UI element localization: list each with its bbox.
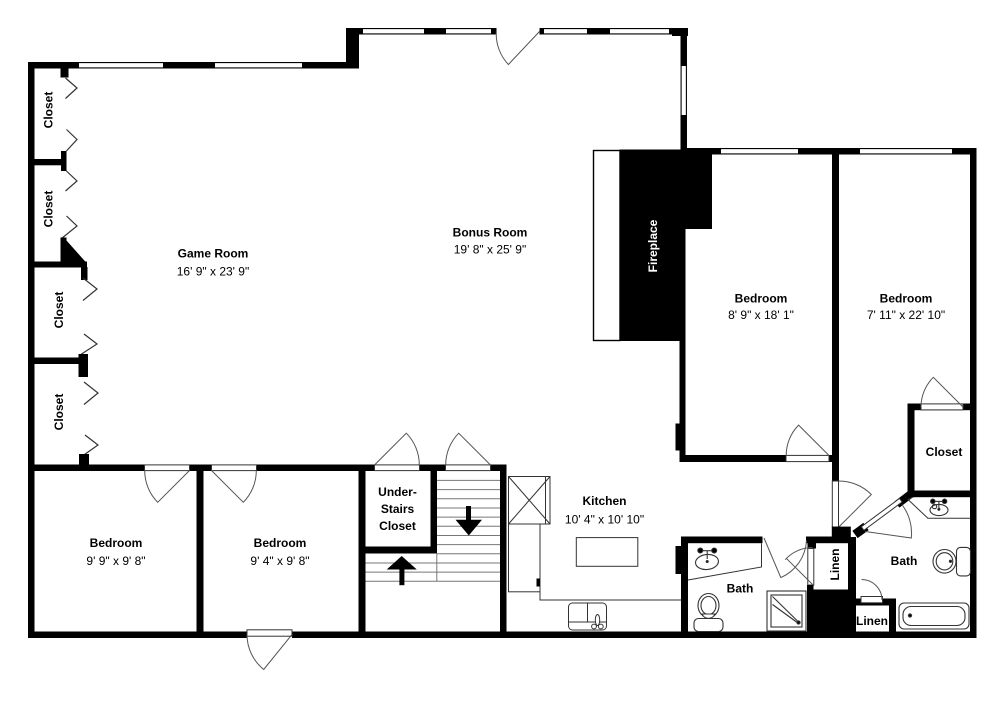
svg-text:9' 4" x 9' 8": 9' 4" x 9' 8" [250, 554, 309, 568]
svg-text:9' 9" x 9' 8": 9' 9" x 9' 8" [86, 554, 145, 568]
svg-text:8' 9" x 18' 1": 8' 9" x 18' 1" [728, 308, 794, 322]
svg-text:7' 11" x 22' 10": 7' 11" x 22' 10" [867, 308, 945, 322]
svg-text:Kitchen: Kitchen [582, 494, 626, 508]
svg-text:10' 4" x 10' 10": 10' 4" x 10' 10" [565, 513, 644, 527]
svg-text:Closet: Closet [926, 445, 963, 459]
svg-text:Stairs: Stairs [381, 502, 415, 516]
svg-text:Bedroom: Bedroom [254, 536, 307, 550]
svg-text:Closet: Closet [379, 519, 416, 533]
svg-text:Fireplace: Fireplace [646, 219, 660, 272]
svg-text:Bath: Bath [891, 554, 918, 568]
svg-text:Bath: Bath [727, 582, 754, 596]
svg-text:Bedroom: Bedroom [880, 292, 933, 306]
svg-text:Closet: Closet [42, 92, 56, 129]
svg-text:Game Room: Game Room [178, 247, 249, 261]
svg-text:Closet: Closet [52, 394, 66, 431]
svg-text:Under-: Under- [378, 485, 417, 499]
svg-text:Bedroom: Bedroom [90, 536, 143, 550]
svg-text:Linen: Linen [828, 549, 842, 581]
svg-text:Bonus Room: Bonus Room [453, 226, 528, 240]
svg-text:Bedroom: Bedroom [735, 292, 788, 306]
svg-text:Closet: Closet [42, 191, 56, 228]
svg-text:16' 9" x 23' 9": 16' 9" x 23' 9" [177, 265, 249, 279]
svg-text:19' 8" x 25' 9": 19' 8" x 25' 9" [454, 243, 526, 257]
svg-text:Closet: Closet [52, 292, 66, 329]
svg-text:Linen: Linen [856, 614, 888, 628]
